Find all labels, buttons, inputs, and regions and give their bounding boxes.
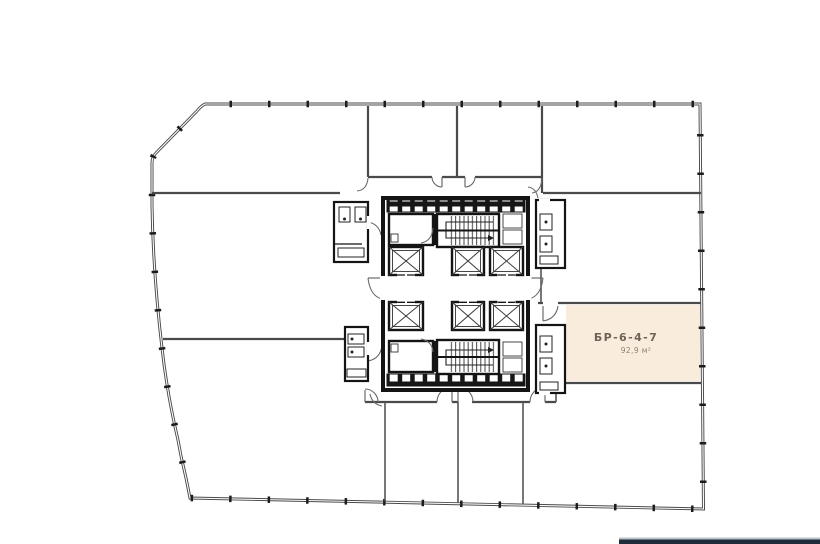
duct-band-south: [387, 374, 525, 386]
core-vestibule-north: [389, 214, 433, 245]
elevator-bank-north: [389, 247, 523, 277]
stair-south: [437, 340, 499, 374]
footer-bar-body: [619, 540, 820, 544]
core-vestibule-south: [389, 339, 433, 372]
unit-label: БР-6-4-7: [594, 331, 658, 344]
footer-bar: [619, 538, 820, 544]
washroom-northwest: [334, 202, 371, 262]
unit-area: 92,9 м²: [621, 346, 652, 355]
floor-plan-canvas: БР-6-4-7 92,9 м²: [0, 0, 820, 544]
washroom-northeast: [536, 199, 565, 268]
washroom-southwest: [345, 327, 371, 381]
building-core: [380, 198, 532, 390]
floor-plan-page: БР-6-4-7 92,9 м²: [0, 0, 820, 544]
footer-bar-highlight: [619, 538, 820, 540]
washroom-southeast: [536, 325, 565, 395]
stair-north: [437, 214, 499, 247]
duct-band-north: [387, 200, 525, 212]
elevator-bank-south: [389, 300, 523, 330]
